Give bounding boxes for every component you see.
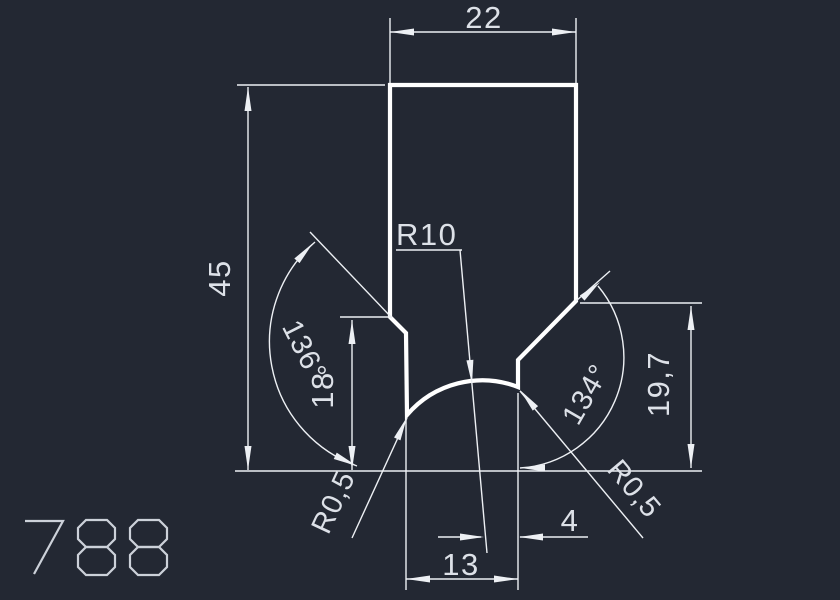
arrowhead-down (349, 446, 356, 470)
arrowhead (394, 416, 410, 441)
glyph-8-lower (78, 547, 115, 575)
dim-right-angle-label: 134° (556, 359, 616, 430)
dim-top-width-label: 22 (465, 0, 502, 35)
dim-bottom-width[interactable]: 13 (406, 393, 518, 590)
dim-overall-height-label: 45 (202, 259, 237, 296)
glyph-8-upper (78, 520, 115, 547)
dim-right-angle[interactable]: 134° (520, 271, 624, 472)
dim-overall-height[interactable]: 45 (202, 85, 385, 470)
dim-fillet-left[interactable]: R0,5 (306, 416, 411, 539)
glyph-7 (25, 521, 63, 574)
glyph-8-lower (130, 547, 167, 575)
arrowhead-right (460, 534, 484, 541)
dim-right-step-height-label: 19,7 (641, 351, 676, 417)
arrowhead-down (688, 444, 695, 468)
arrowhead-left (390, 29, 414, 36)
dim-left-step-height[interactable]: 18 (305, 317, 391, 470)
arrowhead-down (245, 446, 252, 470)
dim-fillet-left-label: R0,5 (306, 466, 363, 539)
angle-arm-extension (310, 232, 392, 318)
leader-line (460, 250, 487, 553)
dim-arc-radius[interactable]: R10 (396, 217, 487, 553)
arrowhead-bottom (334, 453, 359, 469)
arrowhead-up (349, 320, 356, 344)
cad-viewport[interactable]: 22 45 18 19,7 136° 134° (0, 0, 840, 600)
dim-fillet-right-label: R0,5 (601, 454, 667, 525)
dim-apex-offset[interactable]: 4 (438, 503, 588, 541)
arrowhead-top (580, 279, 603, 300)
dim-left-angle-label: 136° (275, 315, 333, 387)
arrowhead-left (406, 576, 430, 583)
dim-apex-offset-label: 4 (561, 503, 580, 538)
dim-bottom-width-label: 13 (442, 547, 479, 582)
glyph-8-upper (130, 520, 167, 547)
arrowhead-up (688, 306, 695, 330)
arrowhead-up (245, 87, 252, 111)
arrowhead-right (494, 576, 518, 583)
dim-top-width[interactable]: 22 (390, 0, 576, 83)
part-number-glyphs (25, 520, 167, 575)
arrowhead-left (519, 534, 543, 541)
arrowhead-right (552, 29, 576, 36)
dim-arc-radius-label: R10 (396, 217, 457, 252)
dim-left-angle[interactable]: 136° (269, 232, 392, 469)
